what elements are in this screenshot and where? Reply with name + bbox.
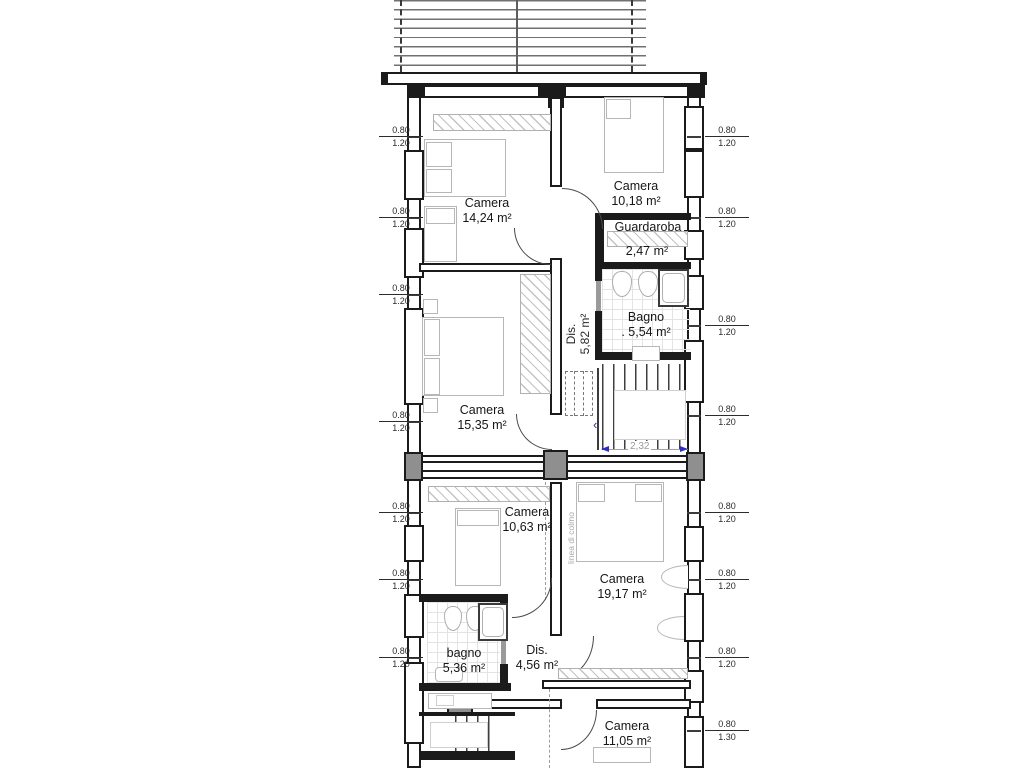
roof-dashed-line-left xyxy=(400,0,402,72)
window xyxy=(684,526,704,562)
room-area: 15,35 m² xyxy=(457,418,506,432)
floor-plan-canvas: ‹ 2,32 xyxy=(0,0,1024,768)
window-dimension-label: 0.801.20 xyxy=(379,206,423,229)
door-arc-camera-1424 xyxy=(514,228,551,265)
dimension-divider xyxy=(705,325,749,326)
window-dimension-label: 0.801.20 xyxy=(705,125,749,148)
window-glass-line xyxy=(687,730,701,732)
door-arc-camera-1018 xyxy=(562,188,603,229)
room-name: Guardaroba xyxy=(615,220,682,234)
window-dimension-label: 0.801.20 xyxy=(379,501,423,524)
door-arc-camera-1105 xyxy=(561,710,597,750)
furniture-pillow xyxy=(424,319,440,356)
attic-void-dashed-line xyxy=(583,371,584,416)
wall-corner-block xyxy=(538,83,566,98)
attic-void-dashed xyxy=(565,371,593,416)
furniture-chair xyxy=(657,616,684,640)
staircase-landing-outline xyxy=(614,390,686,440)
wall-bottom-left xyxy=(421,751,515,760)
room-area: . 5,54 m² xyxy=(621,325,670,339)
wall-bagno536-top xyxy=(419,594,507,602)
room-area: 11,05 m² xyxy=(603,734,651,748)
room-area: 2,47 m² xyxy=(626,244,668,258)
furniture-pillow xyxy=(426,169,452,193)
wall-bedroom-divider xyxy=(419,263,552,272)
pillar-block xyxy=(686,452,705,481)
window-dimension-label: 0.801.20 xyxy=(379,568,423,591)
window-dimension-label: 0.801.20 xyxy=(705,646,749,669)
dimension-divider xyxy=(705,415,749,416)
dimension-divider xyxy=(379,657,423,658)
roof-dashed-line-right xyxy=(631,0,633,72)
door-arc-camera-1535 xyxy=(516,414,552,450)
room-name: Dis. xyxy=(564,324,578,345)
shower-tray xyxy=(662,273,685,303)
room-label-camera-1424: Camera 14,24 m² xyxy=(462,196,511,225)
window-dimension-label: 0.801.20 xyxy=(705,568,749,591)
dimension-divider xyxy=(705,136,749,137)
room-area: 10,63 m² xyxy=(502,520,551,534)
wall-stairwell-edge xyxy=(597,368,599,450)
wall-band2-bottom xyxy=(596,699,691,709)
window xyxy=(404,308,424,405)
room-label-camera-1105: Camera 11,05 m² xyxy=(603,719,651,748)
wall-corridor-lower xyxy=(550,258,562,415)
room-area: 5,82 m² xyxy=(578,314,592,355)
furniture-pillow xyxy=(606,99,631,119)
window-glass-line xyxy=(687,579,701,581)
window xyxy=(404,525,424,562)
dimension-divider xyxy=(379,294,423,295)
door-leaf-bagno xyxy=(596,281,601,311)
room-name: Camera xyxy=(600,572,644,586)
pillar-block xyxy=(543,450,568,480)
room-area: 10,18 m² xyxy=(611,194,660,208)
wall-bagno536-bottom xyxy=(419,683,511,691)
room-name: Camera xyxy=(605,719,649,733)
furniture-wardrobe xyxy=(433,114,551,131)
dimension-divider xyxy=(705,730,749,731)
room-label-guardaroba: Guardaroba xyxy=(615,220,682,235)
window-glass-line xyxy=(687,136,701,138)
window-dimension-label: 0.801.20 xyxy=(379,283,423,306)
window-dimension-label: 0.801.20 xyxy=(379,410,423,433)
stair-width-dimension: 2,32 xyxy=(628,441,651,452)
furniture-pillow xyxy=(578,484,605,502)
wall-bagno-left xyxy=(595,269,602,281)
furniture-pillow xyxy=(424,358,440,395)
furniture-nightstand xyxy=(423,299,438,314)
dimension-divider xyxy=(705,657,749,658)
room-name: Camera xyxy=(505,505,549,519)
window-dimension-label: 0.801.20 xyxy=(379,646,423,669)
room-label-camera-1917: Camera 19,17 m² xyxy=(597,572,646,601)
window-dimension-label: 0.801.20 xyxy=(379,125,423,148)
wall-guardaroba-top xyxy=(595,213,691,220)
staircase-guide-outline xyxy=(430,722,488,748)
shower-tray xyxy=(482,607,504,637)
furniture-desk xyxy=(593,747,651,763)
dimension-divider xyxy=(379,217,423,218)
terrace-end-cap xyxy=(381,72,388,85)
furniture-pillow xyxy=(635,484,662,502)
window xyxy=(684,593,704,642)
wall-band2-top xyxy=(542,680,691,689)
furniture-wardrobe xyxy=(428,486,550,502)
window xyxy=(404,662,424,744)
room-label-bagno-554: Bagno . 5,54 m² xyxy=(621,310,670,339)
dimension-divider xyxy=(705,579,749,580)
room-area: 4,56 m² xyxy=(516,658,558,672)
room-label-bagno-536: bagno 5,36 m² xyxy=(443,646,485,675)
furniture-chair xyxy=(661,565,688,589)
window xyxy=(684,716,704,768)
room-area-guardaroba: 2,47 m² xyxy=(626,244,668,259)
room-name: Dis. xyxy=(526,643,548,657)
window-glass-line xyxy=(687,657,701,659)
ridge-line-label: linea di colmo xyxy=(564,512,578,564)
pillar-block xyxy=(404,452,423,481)
room-name: Camera xyxy=(614,179,658,193)
door-arc-dis456 xyxy=(512,578,552,618)
room-area: 5,36 m² xyxy=(443,661,485,675)
room-label-camera-1535: Camera 15,35 m² xyxy=(457,403,506,432)
wall-bagno-left xyxy=(595,311,602,354)
furniture-nightstand xyxy=(423,398,438,413)
window-dimension-label: 0.801.20 xyxy=(705,206,749,229)
room-label-camera-1063: Camera 10,63 m² xyxy=(502,505,551,534)
wall-corridor-upper xyxy=(550,97,562,187)
furniture-pillow xyxy=(426,142,452,167)
furniture-cabinet-detail xyxy=(436,695,454,706)
wall-corner-block xyxy=(687,85,705,98)
stair-direction-chevron: ‹ xyxy=(593,418,597,431)
window-dimension-label: 0.801.20 xyxy=(705,404,749,427)
room-label-dis-582: Dis. 5,82 m² xyxy=(564,314,592,355)
dimension-arrow-left xyxy=(601,446,609,452)
room-name: Bagno xyxy=(628,310,664,324)
terrace-end-cap xyxy=(700,72,707,85)
roof-decking xyxy=(394,0,646,72)
ridge-line-dashed xyxy=(549,689,550,768)
dimension-divider xyxy=(379,421,423,422)
window xyxy=(684,106,704,150)
window xyxy=(684,150,704,198)
wall-corner-block xyxy=(407,85,425,98)
dimension-divider xyxy=(705,217,749,218)
room-area: 14,24 m² xyxy=(462,211,511,225)
window-dimension-label-tall: 0.801.30 xyxy=(705,719,749,742)
wall-guardaroba-bottom xyxy=(598,262,691,269)
sink-fixture xyxy=(632,346,660,361)
dimension-divider xyxy=(705,512,749,513)
window-glass-line xyxy=(687,512,701,514)
furniture-pillow xyxy=(426,208,455,224)
room-area: 19,17 m² xyxy=(597,587,646,601)
room-name: Camera xyxy=(465,196,509,210)
dimension-divider xyxy=(379,512,423,513)
attic-void-dashed-line xyxy=(574,371,575,416)
furniture-wardrobe xyxy=(520,274,551,394)
room-label-dis-456: Dis. 4,56 m² xyxy=(516,643,558,672)
dimension-divider xyxy=(379,136,423,137)
dimension-divider xyxy=(379,579,423,580)
furniture-wardrobe xyxy=(558,668,688,679)
window-dimension-label: 0.801.20 xyxy=(705,501,749,524)
window-glass-line xyxy=(687,415,701,417)
roof-ridge-line xyxy=(516,0,518,72)
furniture-pillow xyxy=(457,510,499,526)
window xyxy=(404,150,424,200)
room-name: bagno xyxy=(447,646,482,660)
room-label-camera-1018: Camera 10,18 m² xyxy=(611,179,660,208)
window-dimension-label: 0.801.20 xyxy=(705,314,749,337)
room-name: Camera xyxy=(460,403,504,417)
wall-corridor-lower-unit xyxy=(550,482,562,636)
